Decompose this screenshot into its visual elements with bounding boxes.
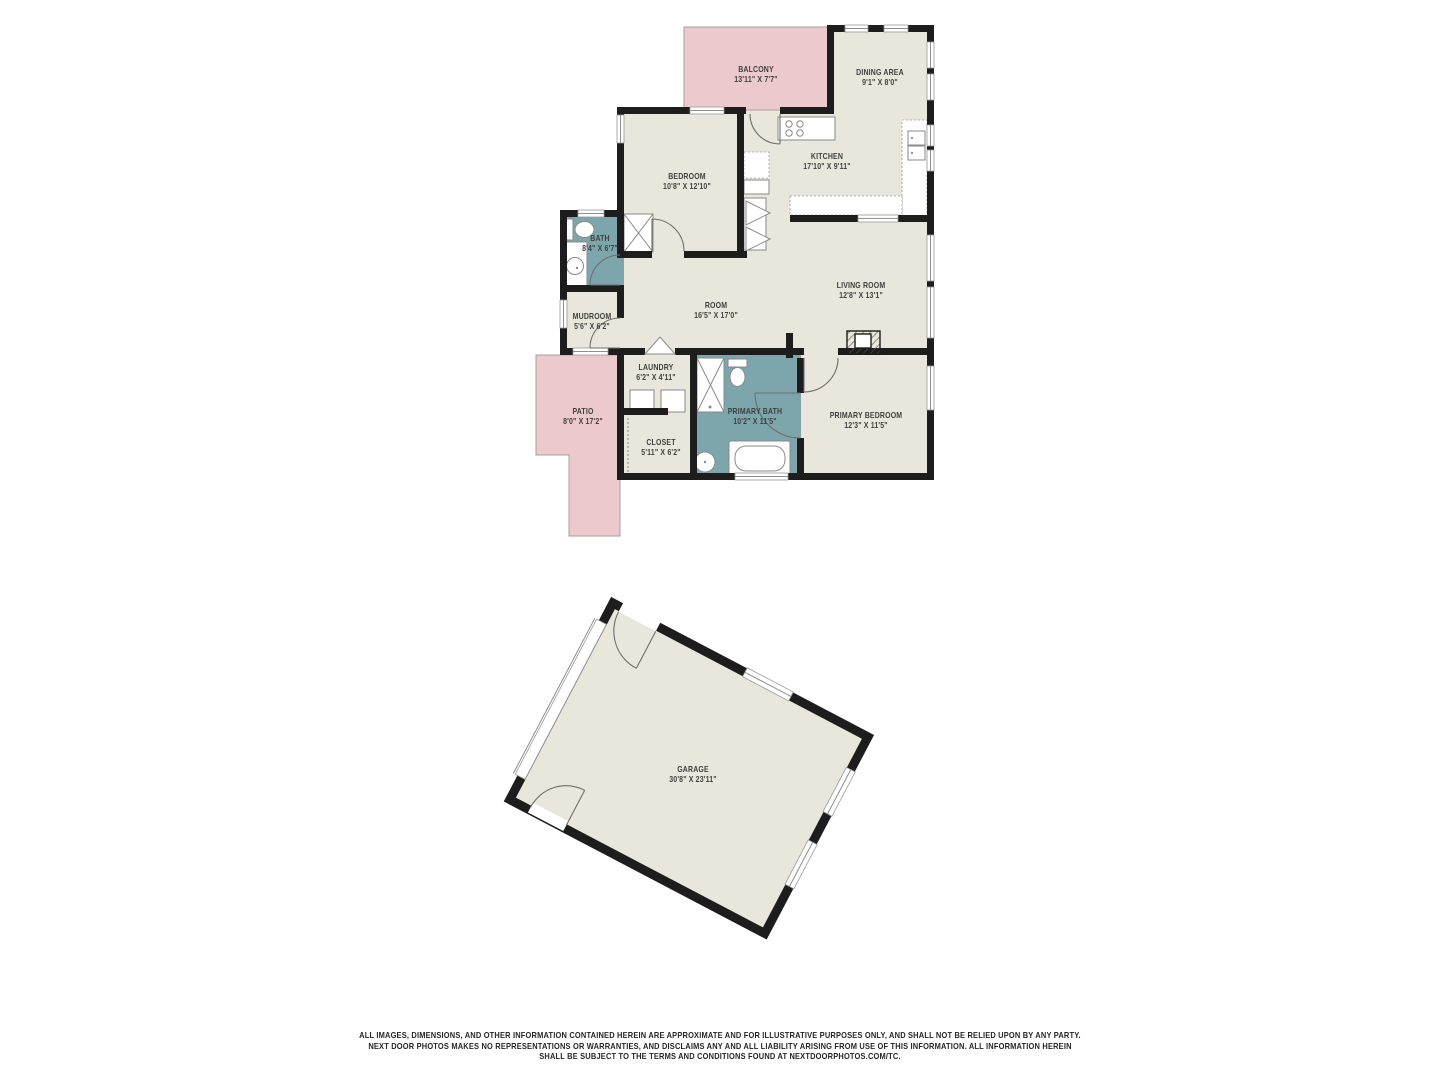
floor-plan-drawing — [0, 0, 1440, 1080]
laundry-dims: 6'2" X 4'11" — [636, 372, 675, 382]
balcony-dims: 13'11" X 7'7" — [734, 74, 777, 84]
room-label-bath: BATH 8'4" X 6'7" — [582, 233, 618, 253]
living-dims: 12'8" X 13'1" — [837, 290, 886, 300]
closet-name: CLOSET — [641, 437, 680, 447]
primary-bath-dims: 10'2" X 11'5" — [728, 416, 783, 426]
pantry-closet — [744, 198, 770, 251]
stove-fixture — [778, 117, 835, 140]
mudroom-dims: 5'6" X 6'2" — [573, 321, 612, 331]
primary-bedroom-name: PRIMARY BEDROOM — [830, 410, 903, 420]
kitchen-name: KITCHEN — [803, 151, 850, 161]
kitchen-sink-fixture — [908, 131, 925, 145]
room-label-balcony: BALCONY 13'11" X 7'7" — [734, 64, 777, 84]
room-label-primary-bedroom: PRIMARY BEDROOM 12'3" X 11'5" — [830, 410, 903, 430]
room-label-patio: PATIO 8'0" X 17'2" — [563, 406, 603, 426]
patio-area — [536, 355, 620, 536]
patio-name: PATIO — [563, 406, 603, 416]
disclaimer-line-1: ALL IMAGES, DIMENSIONS, AND OTHER INFORM… — [72, 1030, 1368, 1041]
bath-dims: 8'4" X 6'7" — [582, 243, 618, 253]
primary-toilet-fixture — [728, 359, 747, 367]
disclaimer-line-3: SHALL BE SUBJECT TO THE TERMS AND CONDIT… — [72, 1051, 1368, 1062]
patio-dims: 8'0" X 17'2" — [563, 416, 603, 426]
room-label-garage: GARAGE 30'8" X 23'11" — [669, 764, 716, 784]
balcony-name: BALCONY — [734, 64, 777, 74]
fridge-fixture — [744, 152, 769, 178]
bedroom-name: BEDROOM — [663, 171, 711, 181]
disclaimer: ALL IMAGES, DIMENSIONS, AND OTHER INFORM… — [72, 1030, 1368, 1062]
fireplace — [847, 331, 880, 354]
dining-name: DINING AREA — [856, 67, 904, 77]
bedroom-dims: 10'8" X 12'10" — [663, 181, 711, 191]
closet-dims: 5'11" X 6'2" — [641, 447, 680, 457]
living-name: LIVING ROOM — [837, 280, 886, 290]
room-label-living: LIVING ROOM 12'8" X 13'1" — [837, 280, 886, 300]
garage-name: GARAGE — [669, 764, 716, 774]
disclaimer-line-2: NEXT DOOR PHOTOS MAKES NO REPRESENTATION… — [72, 1041, 1368, 1052]
room-name: ROOM — [694, 300, 738, 310]
room-label-room: ROOM 16'5" X 17'0" — [694, 300, 738, 320]
mudroom-name: MUDROOM — [573, 311, 612, 321]
primary-bath-name: PRIMARY BATH — [728, 406, 783, 416]
room-label-mudroom: MUDROOM 5'6" X 6'2" — [573, 311, 612, 331]
laundry-name: LAUNDRY — [636, 362, 675, 372]
kitchen-dims: 17'10" X 9'11" — [803, 161, 850, 171]
primary-bedroom-dims: 12'3" X 11'5" — [830, 420, 903, 430]
room-label-laundry: LAUNDRY 6'2" X 4'11" — [636, 362, 675, 382]
garage-dims: 30'8" X 23'11" — [669, 774, 716, 784]
bath-name: BATH — [582, 233, 618, 243]
room-label-dining: DINING AREA 9'1" X 8'0" — [856, 67, 904, 87]
room-label-kitchen: KITCHEN 17'10" X 9'11" — [803, 151, 850, 171]
room-label-bedroom: BEDROOM 10'8" X 12'10" — [663, 171, 711, 191]
room-label-primary-bath: PRIMARY BATH 10'2" X 11'5" — [728, 406, 783, 426]
room-label-closet: CLOSET 5'11" X 6'2" — [641, 437, 680, 457]
floor-plan-page: BALCONY 13'11" X 7'7" DINING AREA 9'1" X… — [0, 0, 1440, 1080]
room-dims: 16'5" X 17'0" — [694, 310, 738, 320]
dining-dims: 9'1" X 8'0" — [856, 77, 904, 87]
